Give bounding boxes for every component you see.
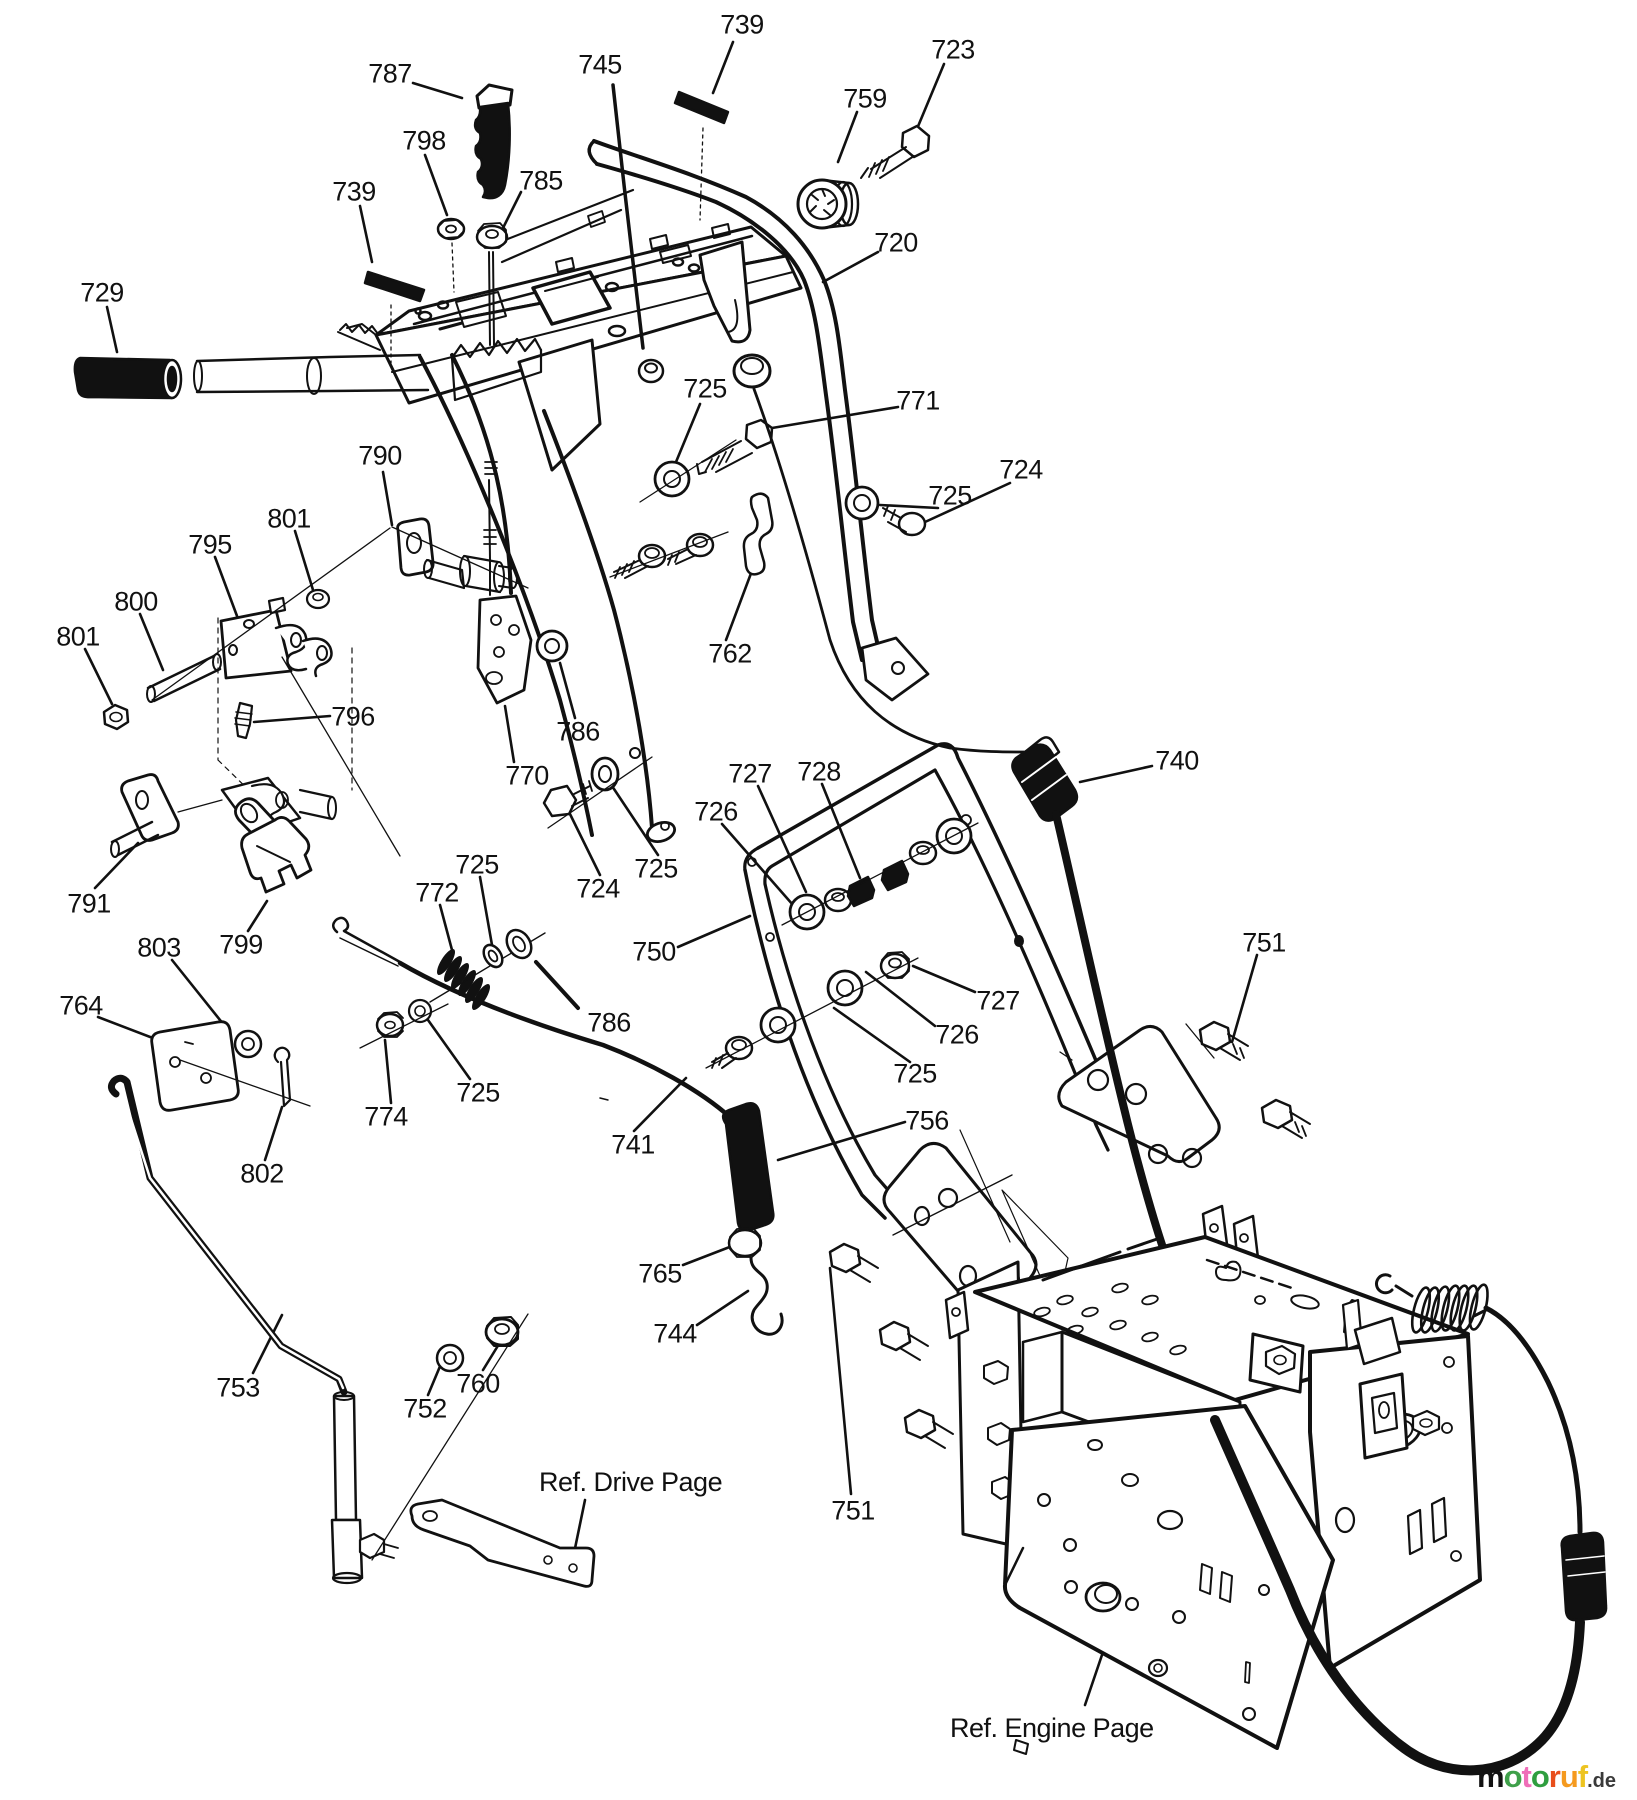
svg-text:803: 803 [137,933,181,963]
svg-text:791: 791 [67,889,111,919]
svg-text:745: 745 [578,50,622,80]
svg-text:798: 798 [402,126,446,156]
svg-text:725: 725 [928,481,972,511]
svg-text:800: 800 [114,587,158,617]
svg-text:799: 799 [219,930,263,960]
svg-text:725: 725 [893,1059,937,1089]
svg-text:801: 801 [267,504,311,534]
svg-text:741: 741 [611,1130,655,1160]
svg-text:752: 752 [403,1394,447,1424]
svg-text:772: 772 [415,878,459,908]
svg-text:725: 725 [455,850,499,880]
svg-text:750: 750 [632,937,676,967]
svg-text:723: 723 [931,35,975,65]
svg-text:801: 801 [56,622,100,652]
svg-text:785: 785 [519,166,563,196]
svg-text:728: 728 [797,757,841,787]
svg-text:Ref. Engine Page: Ref. Engine Page [950,1713,1154,1743]
svg-text:720: 720 [874,228,918,258]
svg-text:759: 759 [843,84,887,114]
svg-text:725: 725 [456,1078,500,1108]
svg-text:774: 774 [364,1102,408,1132]
svg-text:764: 764 [59,991,103,1021]
svg-text:762: 762 [708,639,752,669]
svg-text:744: 744 [653,1319,697,1349]
svg-text:760: 760 [456,1369,500,1399]
svg-text:724: 724 [576,874,620,904]
svg-text:729: 729 [80,278,124,308]
svg-text:724: 724 [999,455,1043,485]
svg-text:795: 795 [188,530,232,560]
svg-text:756: 756 [905,1106,949,1136]
svg-text:787: 787 [368,59,412,89]
svg-text:739: 739 [332,177,376,207]
svg-text:796: 796 [331,702,375,732]
svg-text:726: 726 [694,797,738,827]
svg-text:727: 727 [976,986,1020,1016]
svg-text:726: 726 [935,1020,979,1050]
svg-text:790: 790 [358,441,402,471]
svg-text:739: 739 [720,10,764,40]
svg-text:753: 753 [216,1373,260,1403]
svg-text:725: 725 [683,374,727,404]
svg-text:751: 751 [831,1496,875,1526]
svg-text:802: 802 [240,1159,284,1189]
svg-text:740: 740 [1155,746,1199,776]
svg-text:751: 751 [1242,928,1286,958]
svg-text:725: 725 [634,854,678,884]
svg-text:786: 786 [556,717,600,747]
svg-text:Ref. Drive Page: Ref. Drive Page [539,1467,722,1497]
svg-text:770: 770 [505,761,549,791]
svg-text:765: 765 [638,1259,682,1289]
svg-text:771: 771 [896,386,940,416]
svg-text:727: 727 [728,759,772,789]
svg-text:786: 786 [587,1008,631,1038]
